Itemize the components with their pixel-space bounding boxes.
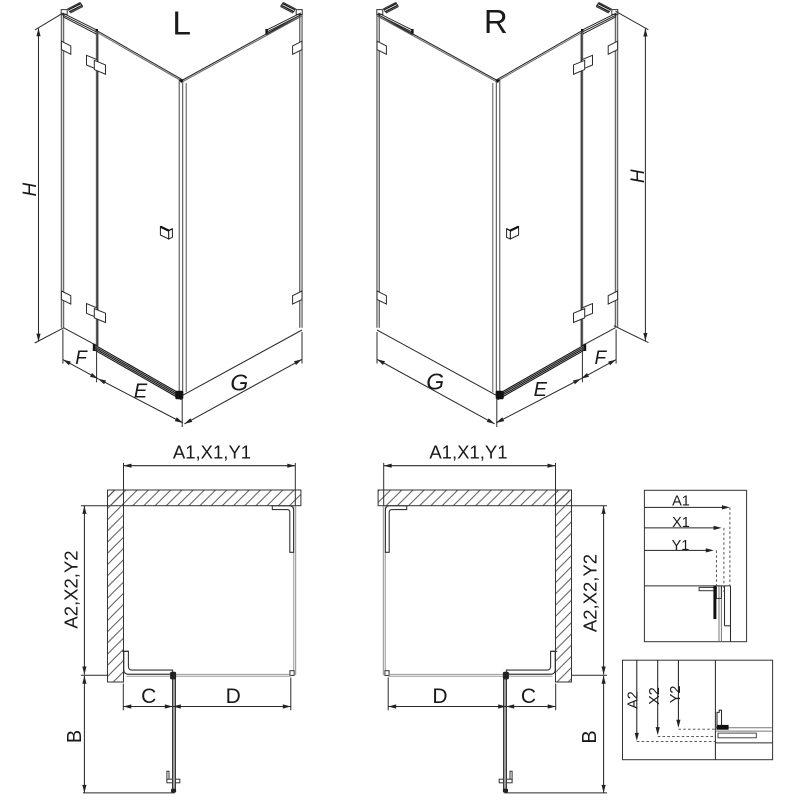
svg-text:E: E	[534, 379, 548, 401]
svg-text:G: G	[426, 368, 444, 394]
svg-text:E: E	[134, 380, 148, 402]
svg-text:L: L	[172, 6, 191, 43]
svg-text:Y2: Y2	[668, 686, 684, 704]
svg-text:X1: X1	[672, 515, 690, 531]
svg-text:R: R	[484, 3, 508, 40]
svg-text:F: F	[594, 348, 607, 369]
svg-text:B: B	[579, 730, 601, 743]
svg-text:A1,X1,Y1: A1,X1,Y1	[429, 441, 507, 462]
svg-text:X2: X2	[647, 687, 663, 705]
svg-text:F: F	[75, 348, 88, 369]
svg-text:H: H	[628, 169, 649, 183]
svg-text:H: H	[20, 182, 41, 196]
svg-text:C: C	[521, 685, 536, 708]
svg-text:A2: A2	[626, 691, 642, 709]
svg-text:D: D	[226, 685, 241, 708]
svg-text:G: G	[230, 370, 248, 396]
svg-text:B: B	[64, 730, 86, 743]
svg-text:A2,X2,Y2: A2,X2,Y2	[580, 554, 601, 632]
svg-text:D: D	[432, 685, 447, 708]
svg-text:A2,X2,Y2: A2,X2,Y2	[61, 550, 82, 628]
svg-text:A1: A1	[672, 494, 690, 510]
svg-text:A1,X1,Y1: A1,X1,Y1	[173, 441, 251, 462]
svg-text:Y1: Y1	[672, 538, 690, 554]
svg-text:C: C	[141, 685, 156, 708]
